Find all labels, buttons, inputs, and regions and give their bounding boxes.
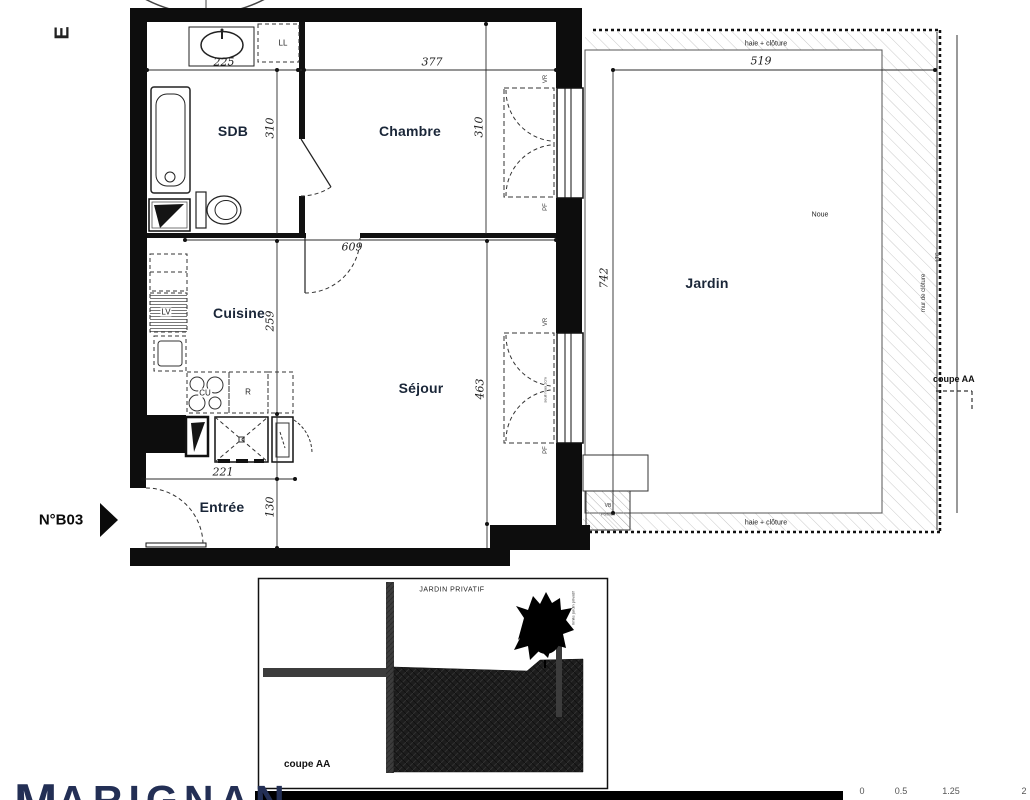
scale-tick-2: 1.25: [942, 786, 960, 796]
dim-chambre-width: 377: [422, 56, 443, 69]
section-title: coupe AA: [284, 759, 330, 770]
dim-jardin-height: 742: [598, 268, 611, 289]
door-entree: [146, 488, 206, 547]
coupe-aa-marker: coupe AA: [933, 374, 975, 384]
french-window-chambre: [504, 88, 583, 198]
section-limit-label: limite jardin privatif: [571, 591, 576, 624]
dim-entree-height: 130: [264, 497, 277, 518]
section-drawing: [259, 579, 608, 789]
washing-machine-label: LL: [279, 39, 288, 48]
bathroom-vanity: [149, 199, 190, 231]
vr-label-sejour: VR: [543, 318, 549, 326]
vr-label-chambre: VR: [543, 75, 549, 83]
dim-jardin-width: 519: [751, 55, 772, 68]
exterior-walls: [130, 8, 590, 566]
pf-label-chambre: PF: [543, 203, 549, 211]
room-label-sejour: Séjour: [399, 380, 444, 396]
room-label-jardin: Jardin: [685, 275, 728, 291]
dishwasher-label: LV: [160, 308, 171, 317]
scale-tick-1: 0.5: [895, 786, 908, 796]
seuil-note: seuil max 2cm: [543, 377, 548, 403]
compass-east-label: E: [52, 26, 75, 39]
scale-tick-3: 2: [1021, 786, 1026, 796]
garden-lawn: [585, 50, 882, 513]
hedge-label-bottom: haie + clôture: [745, 520, 787, 527]
plan-linework: [0, 0, 1030, 800]
room-label-sdb: SDB: [218, 123, 248, 139]
cooktop-label: CU: [198, 389, 212, 398]
kitchen-appliances: [150, 254, 293, 413]
dim-sejour-height: 463: [474, 379, 487, 400]
dim-sink-width: 225: [214, 56, 235, 69]
logo-initial: M: [14, 783, 57, 800]
dim-sdb-height: 310: [264, 118, 277, 139]
dim-cuisine-height: 259: [264, 311, 277, 332]
marignan-logo: MARIGNAN: [14, 783, 291, 800]
scale-tick-0: 0: [859, 786, 864, 796]
toilet: [196, 192, 241, 228]
fridge-label: R: [245, 388, 251, 397]
kitchen-counter: [186, 417, 312, 463]
room-label-chambre: Chambre: [379, 123, 441, 139]
section-garden-label: JARDIN PRIVATIF: [419, 587, 484, 594]
door-sdb: [301, 139, 331, 196]
vb-label: VB: [605, 503, 612, 509]
noue-label: Noue: [812, 212, 829, 219]
room-label-cuisine: Cuisine: [213, 305, 265, 321]
footer-bar: [255, 791, 843, 800]
ltc-label: LTC: [935, 252, 941, 261]
hedge-label-top: haie + clôture: [745, 41, 787, 48]
pf-label-sejour: PF: [543, 446, 549, 454]
dim-chambre-height: 310: [473, 117, 486, 138]
room-label-entree: Entrée: [200, 499, 245, 515]
vb-sub-label: Portillon: [601, 512, 615, 517]
bathtub: [151, 87, 190, 193]
unit-pointer-icon: [100, 503, 118, 537]
fence-wall-label: mur de clôture: [921, 274, 927, 312]
dim-sejour-width: 609: [342, 241, 363, 254]
dim-kitchen-width: 221: [213, 466, 234, 479]
unit-number: N°B03: [39, 512, 83, 529]
floor-plan-page: E SDB Chambre Cuisine Séjour Entrée Jard…: [0, 0, 1030, 800]
logo-text: ARIGNAN: [57, 784, 290, 800]
coupe-marker-line: [936, 391, 972, 412]
